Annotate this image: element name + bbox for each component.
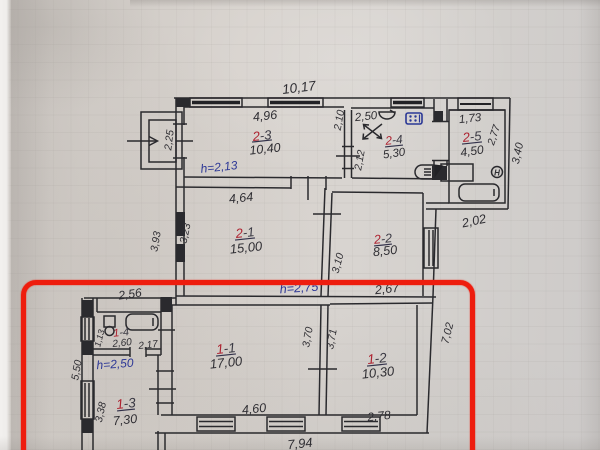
svg-text:3,40: 3,40: [510, 141, 526, 165]
svg-text:3,93: 3,93: [148, 230, 163, 252]
svg-text:8,50: 8,50: [372, 243, 398, 259]
svg-text:2,25: 2,25: [162, 129, 177, 152]
svg-text:2,02: 2,02: [460, 212, 488, 231]
svg-text:1,73: 1,73: [458, 112, 482, 126]
svg-text:4,96: 4,96: [252, 108, 278, 124]
svg-text:H: H: [494, 169, 500, 178]
svg-text:4,64: 4,64: [228, 190, 254, 206]
svg-text:15,00: 15,00: [229, 238, 264, 256]
svg-text:2,12: 2,12: [352, 149, 368, 172]
svg-text:3,10: 3,10: [330, 252, 347, 275]
svg-text:10,17: 10,17: [281, 78, 317, 97]
svg-text:2,77: 2,77: [485, 122, 503, 147]
svg-text:h=2,13: h=2,13: [200, 158, 239, 176]
svg-text:4,50: 4,50: [459, 142, 484, 159]
svg-text:2,50: 2,50: [353, 110, 378, 124]
svg-text:10,40: 10,40: [249, 140, 282, 157]
svg-text:5,30: 5,30: [382, 146, 406, 161]
